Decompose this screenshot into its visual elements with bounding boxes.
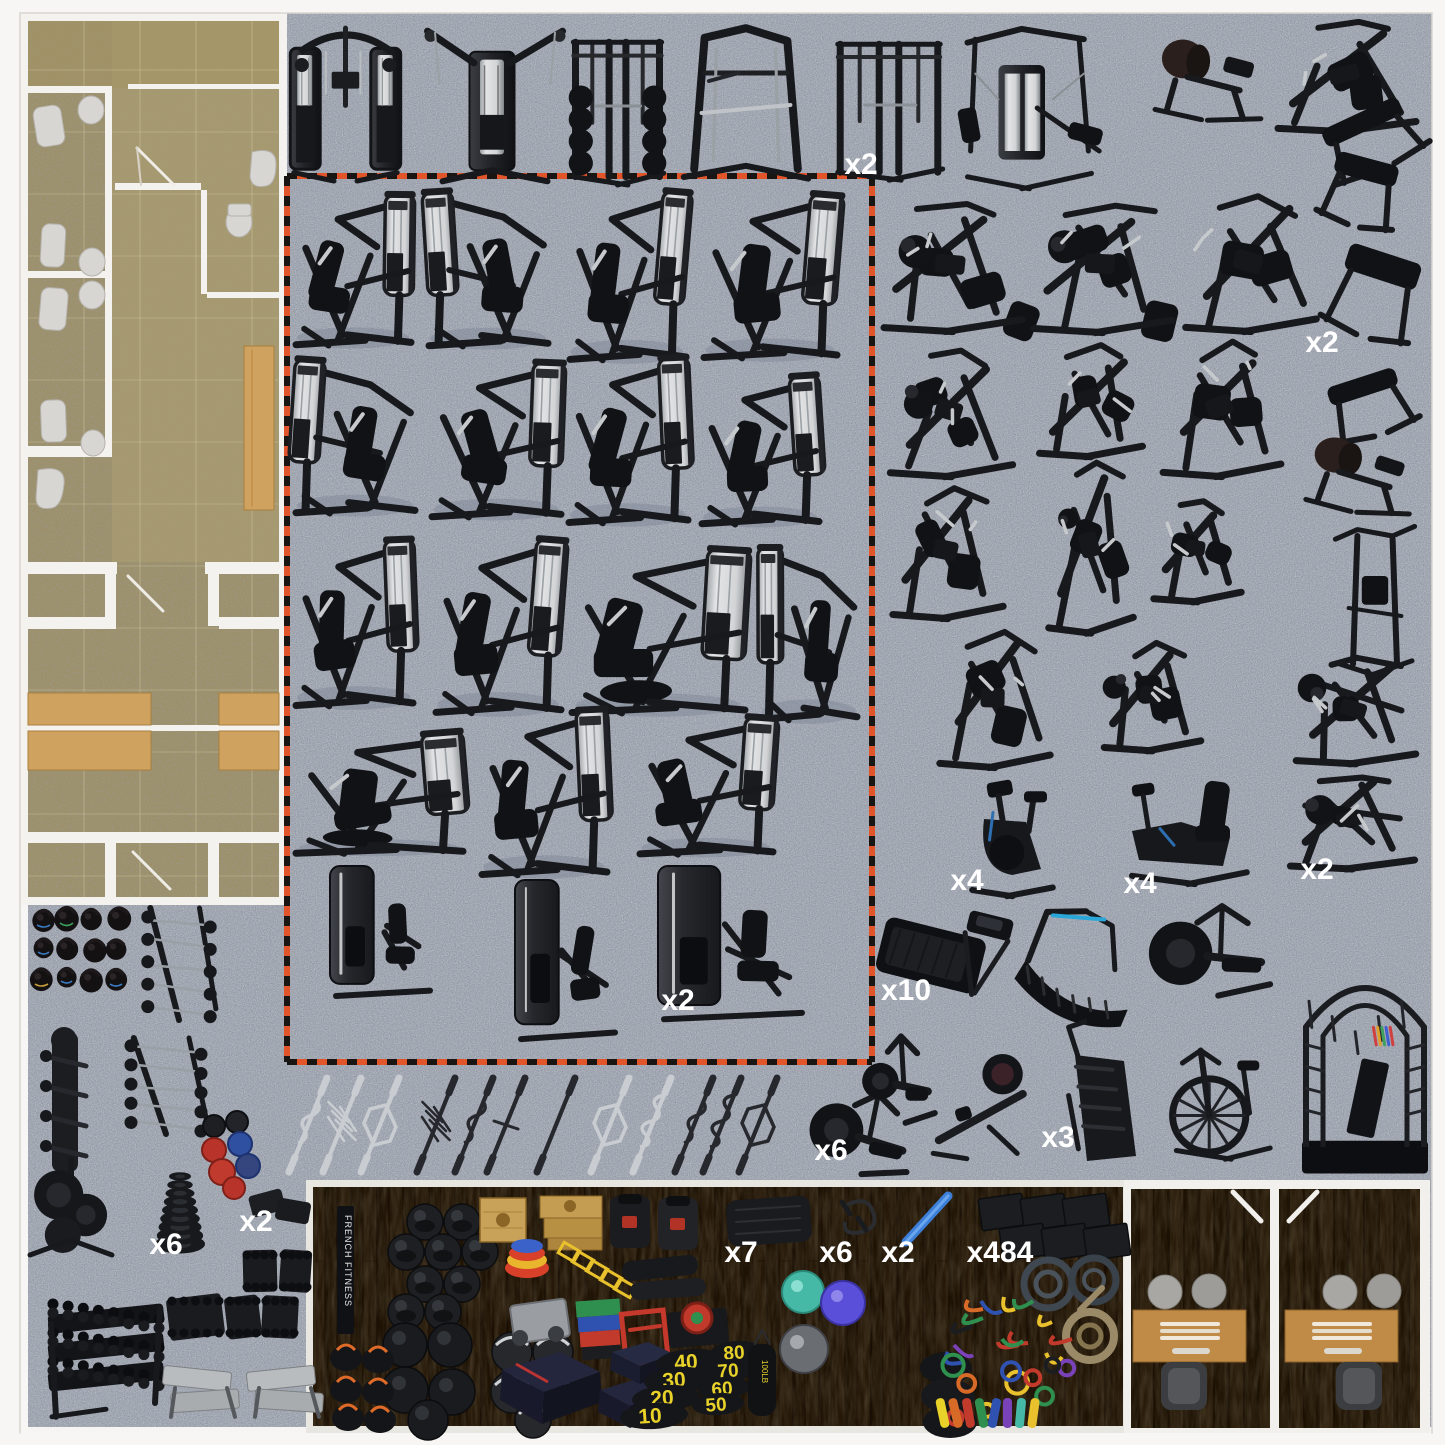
svg-text:x2: x2 xyxy=(239,1205,272,1238)
svg-text:x7: x7 xyxy=(724,1236,757,1269)
svg-text:x2: x2 xyxy=(1305,326,1338,359)
svg-text:x4: x4 xyxy=(950,864,984,897)
svg-text:x6: x6 xyxy=(814,1134,847,1167)
svg-text:10: 10 xyxy=(638,1404,663,1429)
svg-text:x2: x2 xyxy=(844,148,877,181)
svg-text:x4: x4 xyxy=(1123,867,1157,900)
svg-text:x2: x2 xyxy=(661,984,694,1017)
svg-text:50: 50 xyxy=(705,1394,728,1416)
svg-text:FRENCH FITNESS: FRENCH FITNESS xyxy=(343,1215,353,1307)
svg-text:x3: x3 xyxy=(1041,1121,1074,1154)
svg-text:x10: x10 xyxy=(881,974,931,1007)
svg-text:x2: x2 xyxy=(881,1236,914,1269)
svg-text:x2: x2 xyxy=(1300,853,1333,886)
svg-text:x484: x484 xyxy=(967,1236,1034,1269)
svg-text:100LB: 100LB xyxy=(760,1360,769,1383)
svg-text:x6: x6 xyxy=(149,1228,182,1261)
svg-text:x6: x6 xyxy=(819,1236,852,1269)
